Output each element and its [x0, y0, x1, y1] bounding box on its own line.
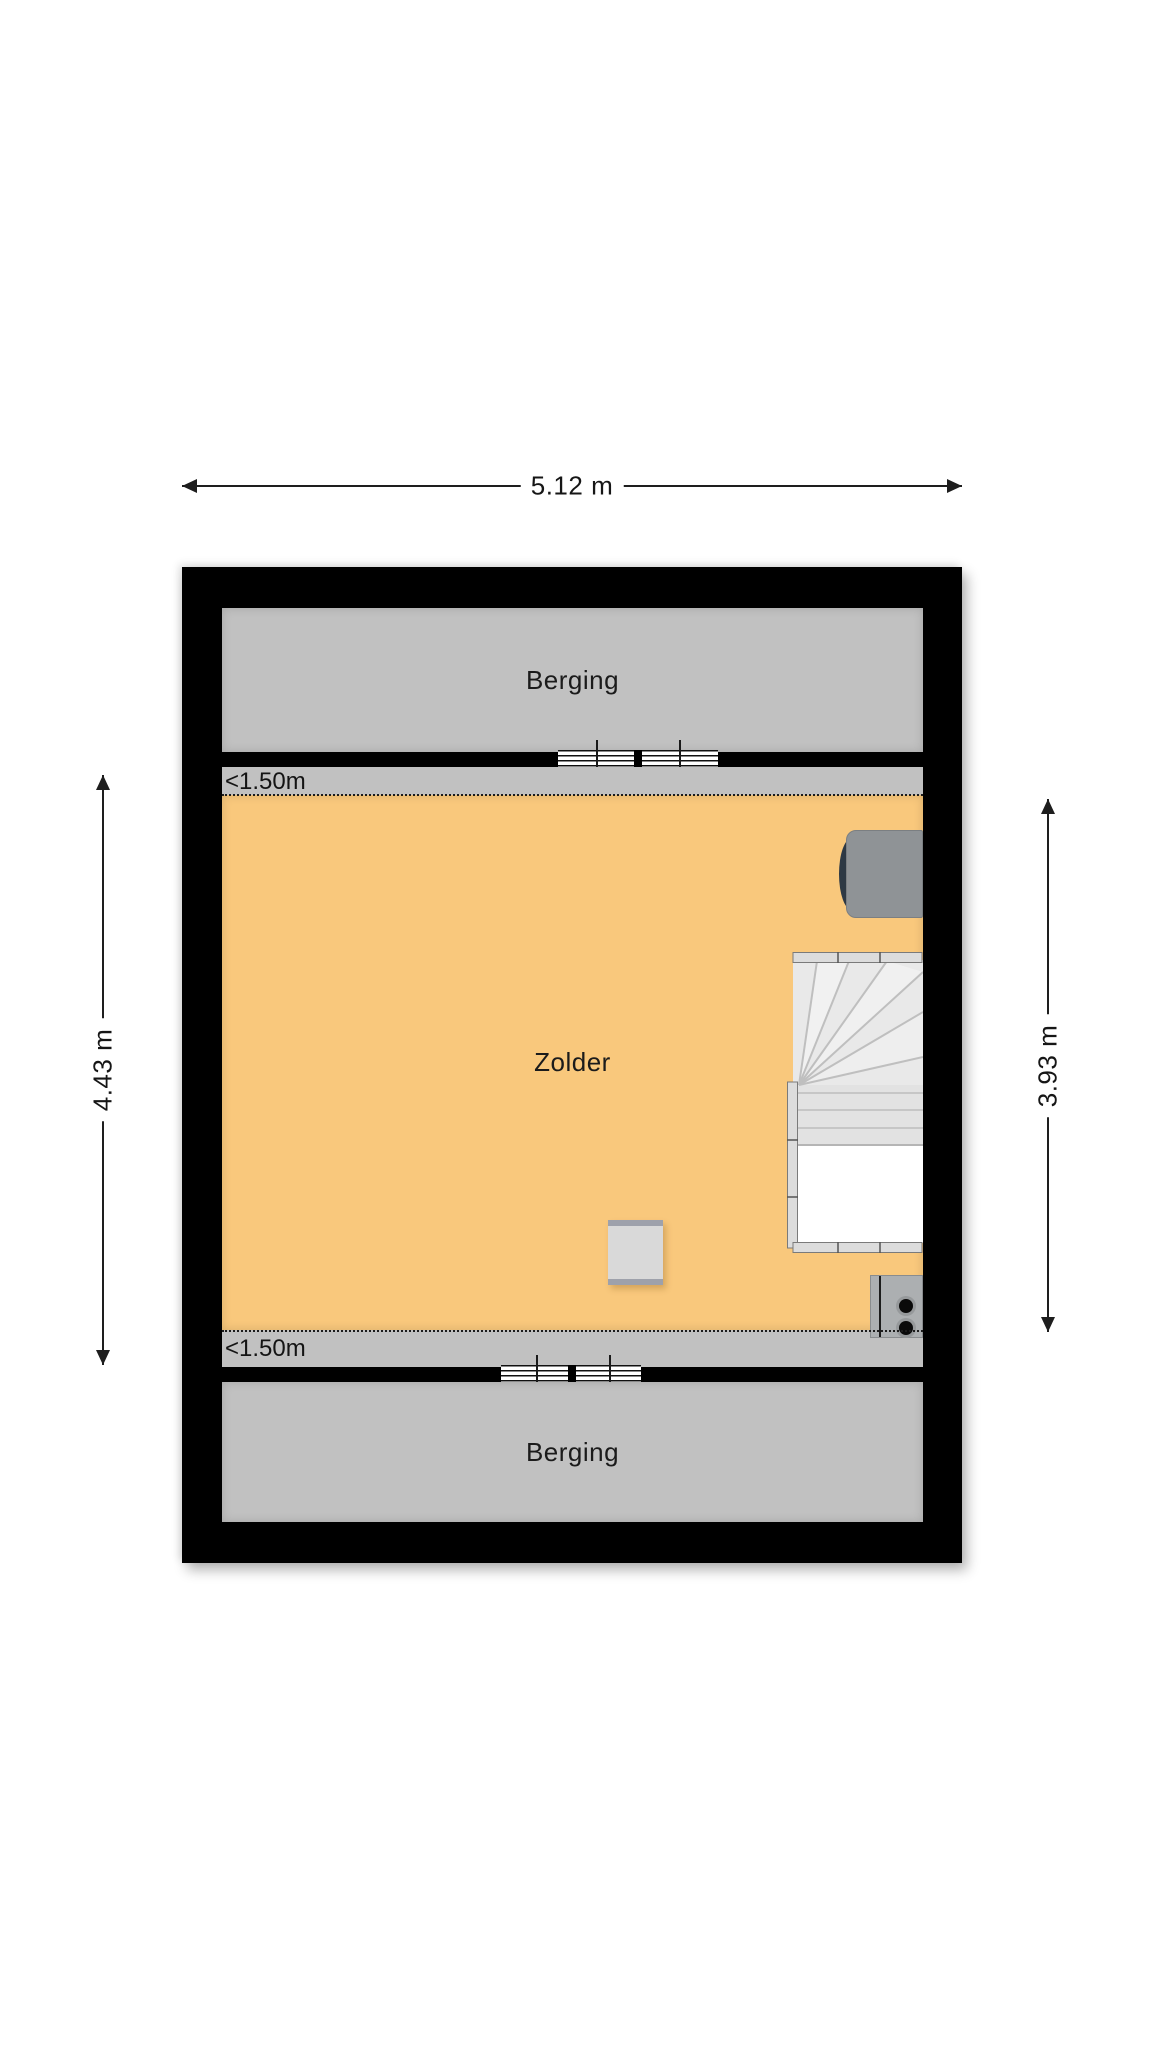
boiler-unit [870, 1275, 923, 1338]
arrowhead-up-icon [96, 775, 110, 790]
dimension-right-label: 3.93 m [1033, 1015, 1064, 1118]
low-height-label-top: <1.50m [225, 768, 306, 796]
dimension-left-label: 4.43 m [88, 1019, 119, 1122]
room-berging-bottom: Berging [222, 1382, 923, 1522]
boiler-unit-line [879, 1276, 881, 1337]
arrowhead-up-icon [1041, 799, 1055, 814]
room-label: Zolder [534, 1047, 611, 1078]
low-height-strip-top [222, 767, 923, 795]
window-mullion [634, 750, 642, 767]
room-label: Berging [526, 665, 619, 696]
boiler-dot-icon [899, 1321, 913, 1335]
staircase [787, 952, 923, 1253]
window-top [558, 750, 718, 767]
window-bottom [501, 1365, 641, 1382]
room-label: Berging [526, 1437, 619, 1468]
dimension-top-label: 5.12 m [521, 471, 624, 502]
cabinet-square [608, 1220, 663, 1285]
dotted-line-bottom [222, 1330, 923, 1332]
arrowhead-left-icon [182, 479, 197, 493]
window-mullion [568, 1365, 576, 1382]
room-berging-top: Berging [222, 608, 923, 752]
arrowhead-right-icon [947, 479, 962, 493]
low-height-label-bottom: <1.50m [225, 1335, 306, 1363]
arrowhead-down-icon [96, 1350, 110, 1365]
floorplan: Berging <1.50m Zolder [182, 567, 962, 1563]
boiler-dot-icon [899, 1299, 913, 1313]
chair [846, 830, 923, 918]
arrowhead-down-icon [1041, 1317, 1055, 1332]
dotted-line-top [222, 794, 923, 796]
low-height-strip-bottom [222, 1330, 923, 1367]
floorplan-canvas: 5.12 m 4.43 m 3.93 m Berging <1.50m Zold… [0, 0, 1152, 2048]
